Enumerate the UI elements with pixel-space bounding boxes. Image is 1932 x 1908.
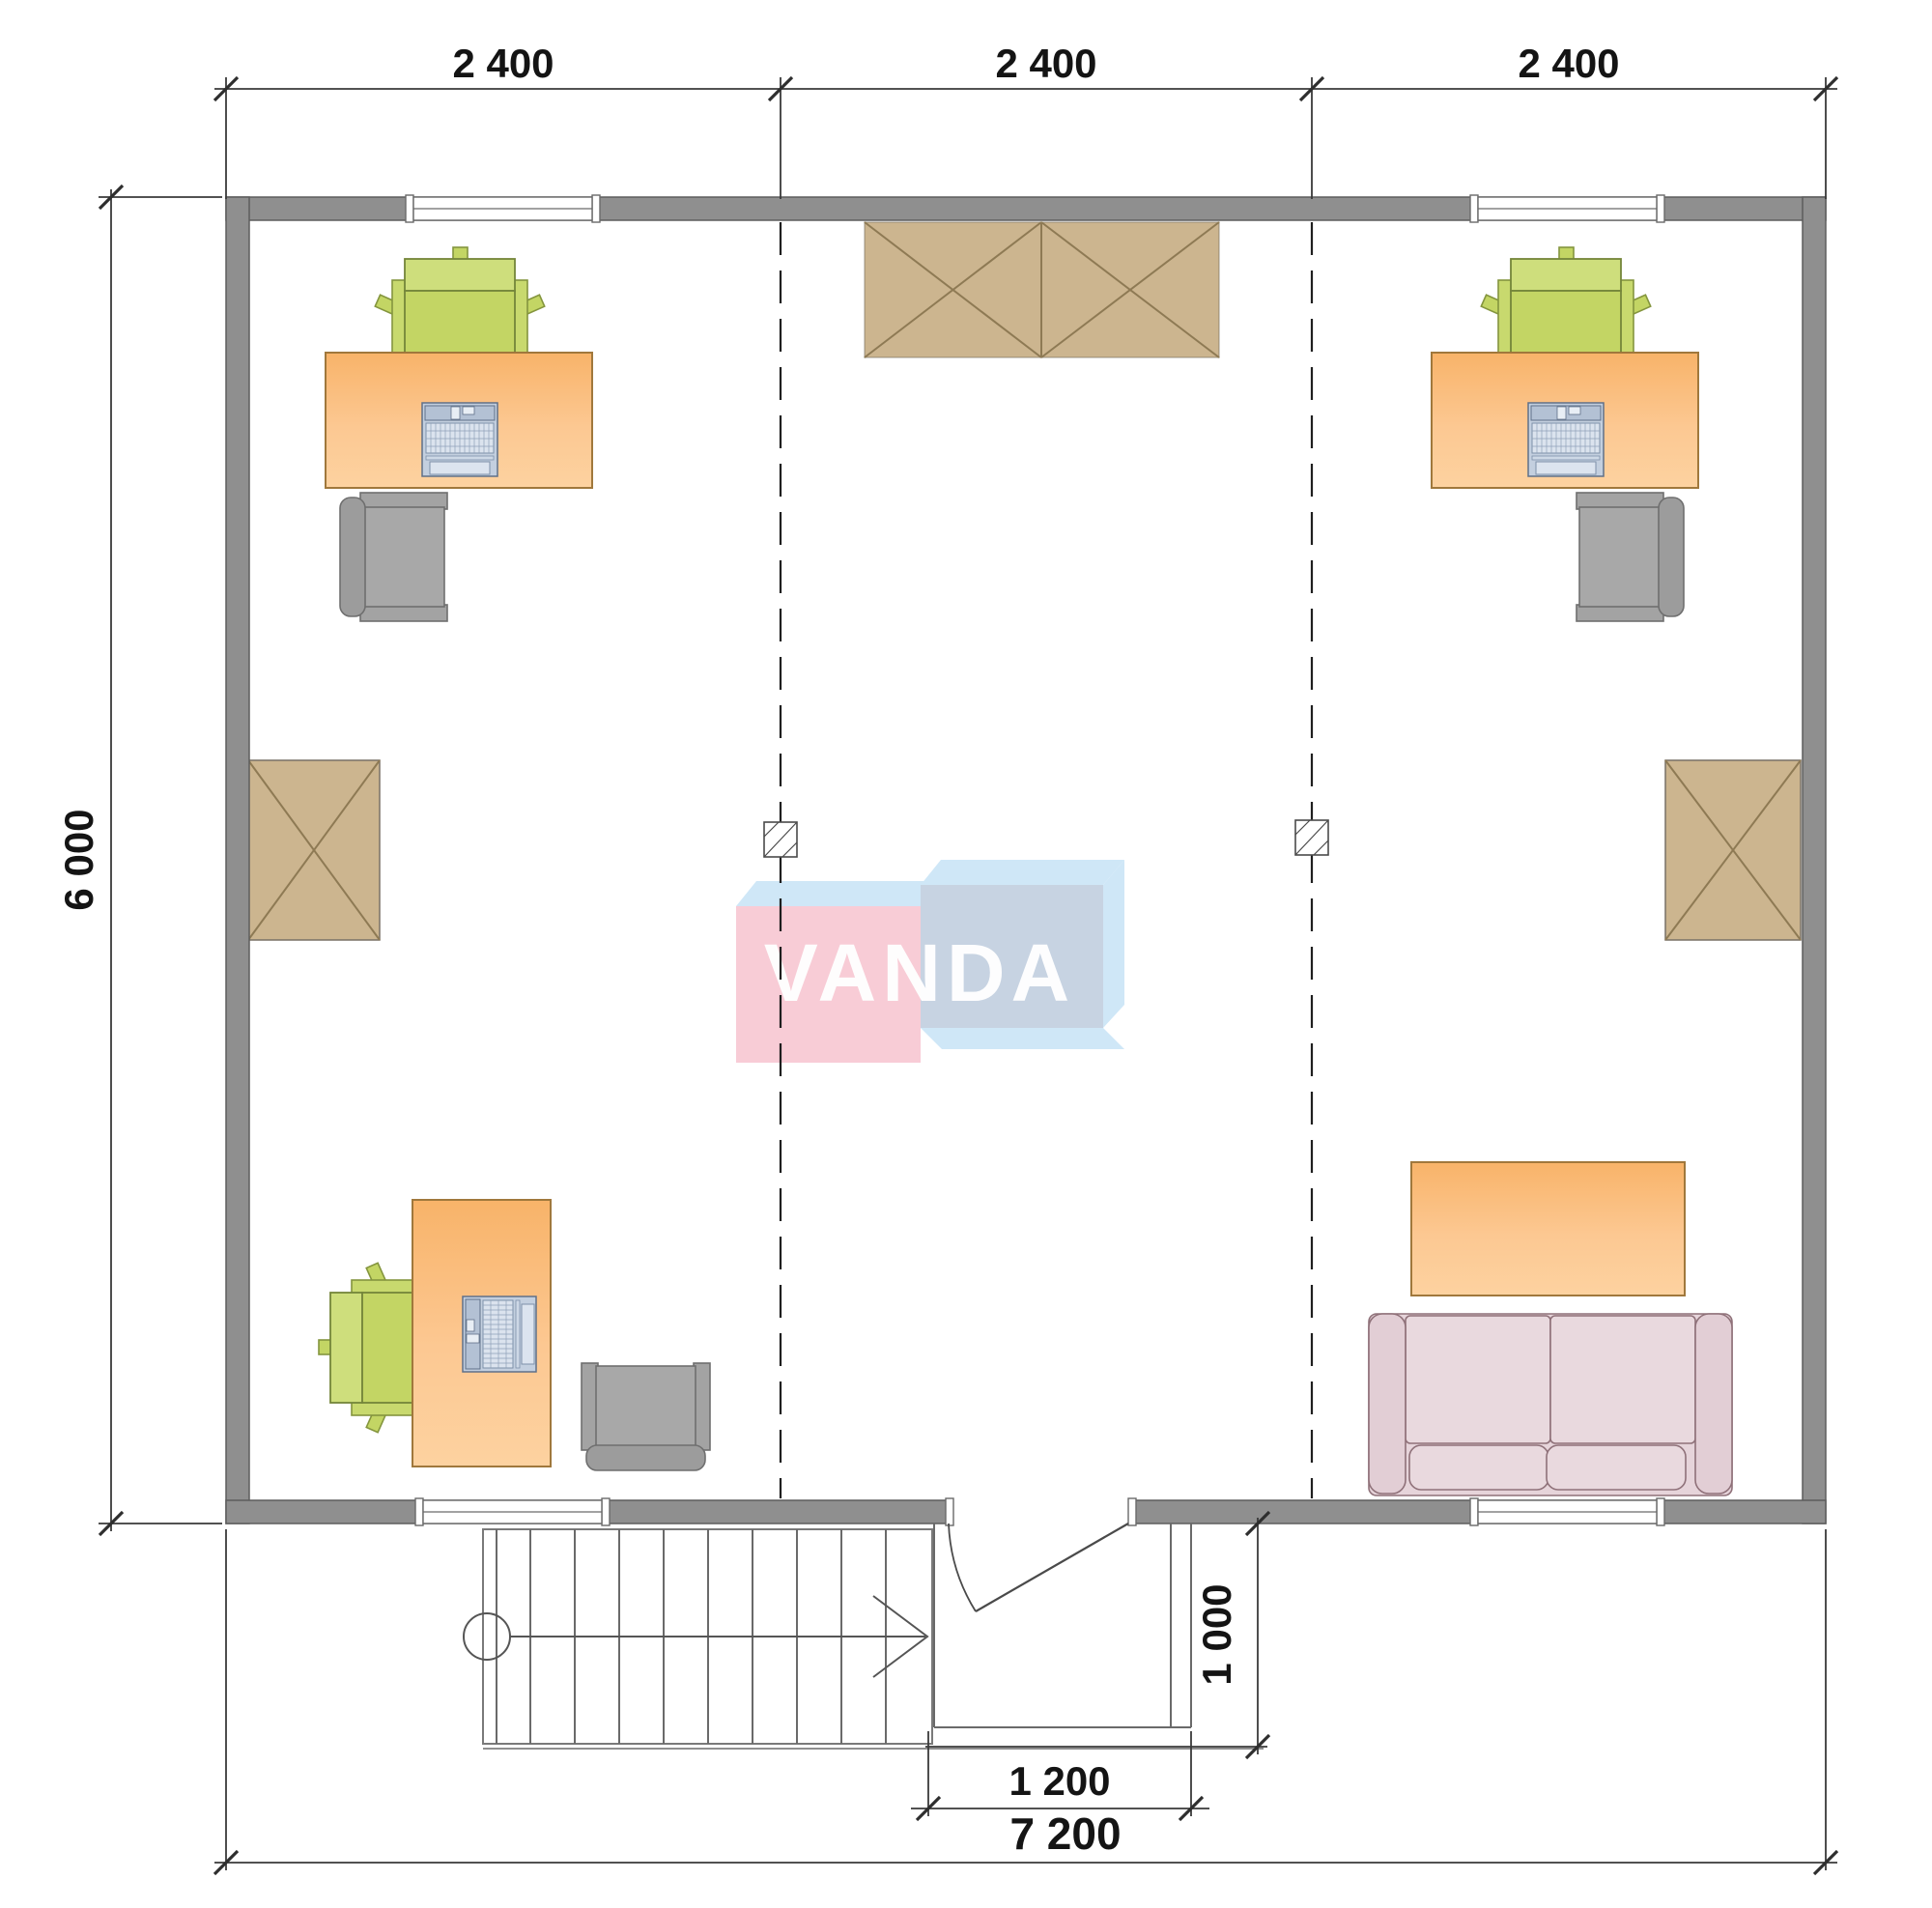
window-top-right xyxy=(1470,195,1664,222)
door-leaf xyxy=(976,1524,1128,1611)
laptop-top-left xyxy=(422,403,497,476)
laptop-top-right xyxy=(1528,403,1604,476)
dimension-porch-width: 1 200 xyxy=(911,1731,1209,1820)
entry-door xyxy=(946,1498,1136,1611)
watermark-box-top-right xyxy=(921,860,1124,885)
task-chair-green-bottom-left xyxy=(319,1263,427,1432)
door-jamb-right xyxy=(1128,1498,1136,1525)
office-chair-gray-bottom-left xyxy=(582,1363,710,1470)
wall-left xyxy=(226,197,249,1524)
column-marker-left xyxy=(764,822,797,857)
vanda-watermark-logo: VANDA xyxy=(736,860,1124,1063)
door-opening xyxy=(953,1499,1128,1524)
window-top-left xyxy=(406,195,600,222)
dim-label-porch-depth: 1 000 xyxy=(1194,1583,1239,1685)
wardrobe-right-wall xyxy=(1665,760,1801,940)
dimension-top: 2 400 2 400 2 400 xyxy=(214,41,1837,199)
dimension-porch-depth: 1 000 xyxy=(925,1512,1269,1758)
column-marker-right xyxy=(1295,820,1328,855)
watermark-box-top-left xyxy=(736,881,941,906)
dim-label-porch-width: 1 200 xyxy=(1009,1758,1110,1804)
wardrobe-left-wall xyxy=(248,760,380,940)
wall-right xyxy=(1803,197,1826,1524)
office-chair-gray-top-right xyxy=(1577,493,1684,621)
door-swing-arc xyxy=(949,1524,976,1611)
dim-label-bay-3: 2 400 xyxy=(1518,41,1619,86)
floor-plan-canvas: VANDA xyxy=(0,0,1932,1908)
sofa-loveseat xyxy=(1369,1314,1732,1495)
stairs xyxy=(464,1529,932,1744)
dim-label-bay-1: 2 400 xyxy=(452,41,554,86)
floor-plan-page: VANDA xyxy=(0,0,1932,1908)
watermark-box-side xyxy=(1103,860,1124,1028)
coffee-table xyxy=(1411,1162,1685,1296)
door-jamb-left xyxy=(946,1498,953,1525)
office-chair-gray-top-left xyxy=(340,493,447,621)
task-chair-green-top-right xyxy=(1481,247,1650,356)
watermark-brand-text: VANDA xyxy=(764,927,1075,1018)
laptop-bottom-left xyxy=(463,1296,536,1372)
window-bottom-left xyxy=(415,1498,610,1525)
dim-label-depth: 6 000 xyxy=(56,809,101,910)
dimension-left: 6 000 xyxy=(56,185,222,1535)
dimension-total-width: 7 200 xyxy=(214,1529,1837,1874)
dim-label-bay-2: 2 400 xyxy=(995,41,1096,86)
task-chair-green-top-left xyxy=(375,247,544,356)
furniture-layer xyxy=(248,222,1801,1495)
watermark-box-bottom xyxy=(921,1028,1124,1049)
dim-label-total-width: 7 200 xyxy=(1009,1808,1121,1859)
window-bottom-right xyxy=(1470,1498,1664,1525)
wardrobe-top-center xyxy=(865,222,1219,357)
